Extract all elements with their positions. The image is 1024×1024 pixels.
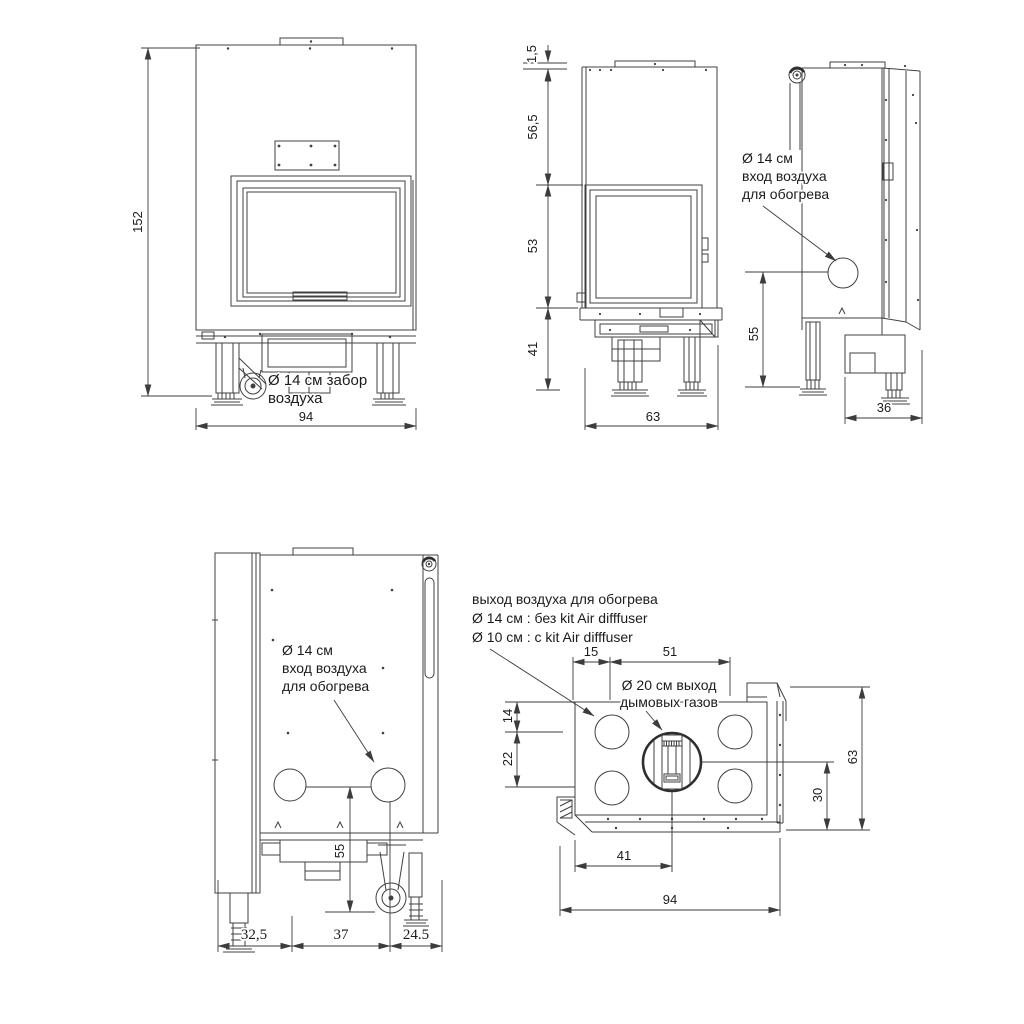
rear-inlet-height-dim-label: 55 (332, 844, 347, 858)
front-door-frame (231, 176, 411, 306)
rear-caster-wheel (376, 883, 406, 913)
top-air-outlet-label-line1: выход воздуха для обогрева (472, 591, 658, 607)
rear-air-inlet-label-line2: вход воздуха (282, 660, 367, 676)
rear-bottom-dim-label-1: 32,5 (241, 927, 267, 943)
front-caster-wheel (240, 373, 266, 399)
side-right-linework (790, 62, 920, 404)
side-right-pulley (789, 67, 805, 83)
side-right-depth-dimension: 36 (845, 350, 922, 424)
top-screw-dots (607, 714, 781, 829)
rear-air-inlet-annotation: Ø 14 см вход воздуха для обогрева (282, 642, 374, 762)
side-left-depth-dim-label: 63 (646, 409, 660, 424)
rear-air-inlet-hole-right (371, 768, 405, 802)
top-right-dimensions: 63 30 (786, 687, 870, 830)
top-flue-annotation: Ø 20 см выход дымовых газов (620, 677, 718, 730)
front-width-dimension: 94 (196, 408, 416, 430)
side-right-rear-leg (886, 373, 902, 390)
front-air-intake-label-line2: воздуха (268, 390, 323, 407)
rear-air-inlet-label-line3: для обогрева (282, 678, 369, 694)
top-flue-label-line1: Ø 20 см выход (622, 677, 717, 693)
fireplace-dimension-drawing: 152 94 Ø 14 см забор воздуха (0, 0, 1024, 1024)
top-flue-leader-arrow (646, 711, 662, 730)
top-flue-label-line2: дымовых газов (620, 694, 718, 710)
top-span-dim-label: 51 (663, 644, 677, 659)
top-offset-dim-label: 15 (584, 644, 598, 659)
side-right-air-inlet-label-line3: для обогрева (742, 186, 829, 202)
front-view-linework (196, 38, 416, 405)
side-left-linework (577, 61, 722, 396)
side-right-front-leg (806, 322, 820, 380)
side-right-depth-dim-label: 36 (877, 400, 891, 415)
side-right-air-inlet-label-line2: вход воздуха (742, 168, 827, 184)
rear-right-leg (403, 853, 429, 926)
top-flue-outlet (643, 733, 701, 791)
top-bottom-dimensions: 41 94 (560, 838, 780, 916)
side-left-upper-dim-label: 56,5 (525, 114, 540, 139)
front-height-dimension: 152 (130, 48, 212, 396)
side-left-screw-dots (589, 63, 707, 331)
rear-inlet-height-dimension: 55 (306, 787, 375, 912)
front-height-dimension-label: 152 (130, 211, 145, 233)
front-air-intake-annotation: Ø 14 см забор воздуха (268, 372, 367, 407)
side-right-air-inlet-annotation: Ø 14 см вход воздуха для обогрева (742, 150, 836, 261)
side-right-leader-arrow (763, 206, 836, 261)
side-right-air-inlet-hole (828, 258, 858, 288)
rear-air-inlet-label-line1: Ø 14 см (282, 642, 333, 658)
top-bottom-outer-dim-label: 94 (663, 892, 677, 907)
side-left-thickness-dim-label: 1,5 (524, 45, 539, 63)
top-right-outer-dim-label: 63 (845, 750, 860, 764)
side-left-door-frame (585, 185, 702, 308)
top-air-outlet-hole-3 (595, 771, 629, 805)
top-left-lower-dim-label: 22 (500, 752, 515, 766)
top-left-upper-dim-label: 14 (500, 709, 515, 723)
front-screw-dots (224, 40, 393, 338)
side-left-middle-dim-label: 53 (525, 239, 540, 253)
side-left-lower-dim-label: 41 (525, 342, 540, 356)
side-left-view: 1,5 56,5 53 41 63 (523, 45, 722, 430)
top-bottom-inner-dim-label: 41 (617, 848, 631, 863)
side-left-rear-leg (684, 337, 700, 382)
front-right-leg (377, 343, 399, 393)
top-air-outlet-leader-arrow (490, 649, 594, 716)
top-air-outlet-hole-4 (718, 769, 752, 803)
rear-bottom-dim-label-3: 24.5 (403, 927, 429, 943)
front-width-dimension-label: 94 (299, 409, 313, 424)
rear-pulley (422, 557, 436, 571)
rear-leader-arrow (334, 700, 374, 762)
rear-view: Ø 14 см вход воздуха для обогрева 55 32,… (212, 548, 442, 952)
side-right-view: Ø 14 см вход воздуха для обогрева 55 36 (742, 62, 922, 424)
top-air-outlet-label-line2: Ø 14 см : без kit Air difffuser (472, 610, 648, 626)
top-left-dimensions: 14 22 (500, 702, 575, 787)
blueprint-canvas: 152 94 Ø 14 см забор воздуха (0, 0, 1024, 1024)
rear-air-inlet-hole-left (274, 769, 306, 801)
top-right-inner-dim-label: 30 (810, 788, 825, 802)
front-view: 152 94 Ø 14 см забор воздуха (130, 38, 416, 430)
rear-bottom-dim-label-2: 37 (334, 927, 350, 943)
side-right-inlet-height-dim-label: 55 (746, 327, 761, 341)
front-door-glass (243, 188, 400, 297)
top-view: выход воздуха для обогрева Ø 14 см : без… (472, 591, 870, 916)
front-air-intake-label-line1: Ø 14 см забор (268, 372, 367, 389)
front-air-intake-box (262, 334, 352, 372)
side-left-stacked-dimensions: 1,5 56,5 53 41 (523, 45, 583, 390)
top-air-outlet-label-line3: Ø 10 см : с kit Air difffuser (472, 629, 633, 645)
top-air-outlet-hole-1 (595, 715, 629, 749)
front-left-leg (216, 343, 266, 393)
side-right-air-inlet-label-line1: Ø 14 см (742, 150, 793, 166)
top-air-outlet-hole-2 (718, 715, 752, 749)
